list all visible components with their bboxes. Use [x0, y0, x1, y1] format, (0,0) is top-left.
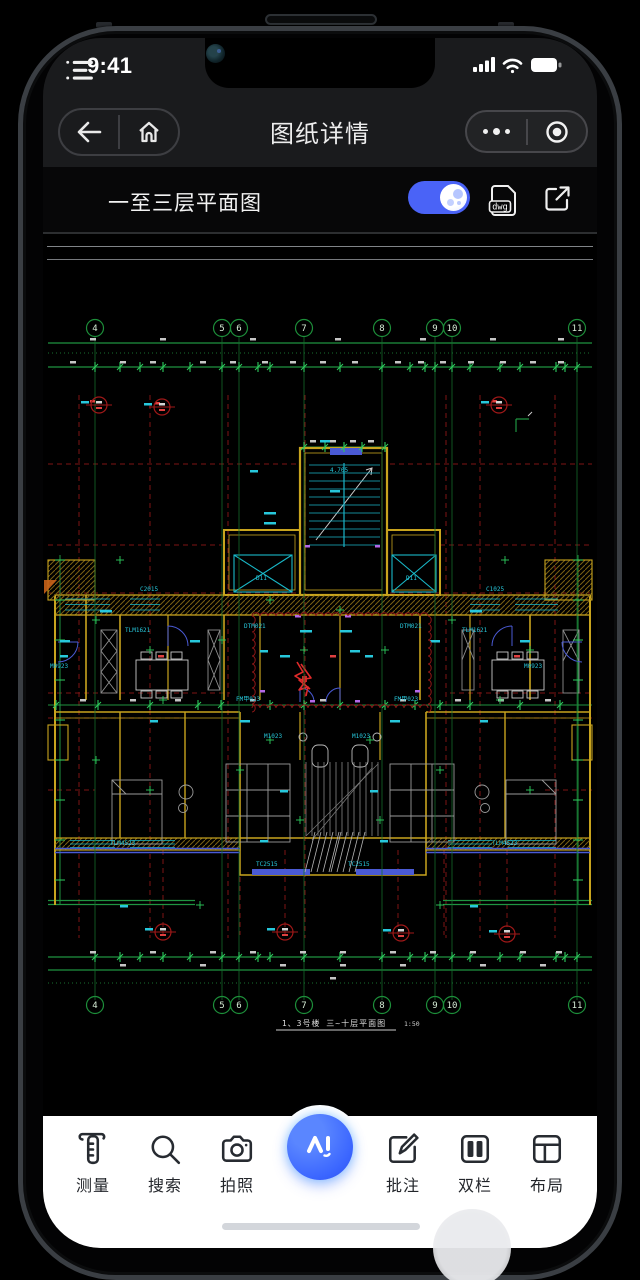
tool-measure[interactable]: 测量 — [61, 1128, 125, 1212]
svg-text:9: 9 — [432, 1001, 437, 1011]
ai-logo-icon — [300, 1127, 340, 1167]
cad-windows — [65, 599, 558, 848]
tool-label: 批注 — [371, 1172, 435, 1196]
tool-label: 布局 — [515, 1172, 579, 1196]
cad-drawing: 44556677889910101111C2015C1025TLM1621TLM… — [43, 260, 597, 1116]
annotate-icon — [386, 1132, 420, 1166]
tool-layout[interactable]: 布局 — [515, 1128, 579, 1212]
back-button[interactable] — [60, 110, 118, 154]
nav-pill — [58, 108, 180, 156]
svg-text:C1025: C1025 — [486, 586, 504, 593]
screenshot-stage: 9:41 — [0, 0, 640, 1280]
two-column-icon — [458, 1132, 492, 1166]
status-icons — [473, 55, 579, 75]
cad-viewport[interactable]: 44556677889910101111C2015C1025TLM1621TLM… — [43, 260, 597, 1116]
svg-text:5: 5 — [219, 1001, 224, 1011]
tool-label: 测量 — [61, 1172, 125, 1196]
svg-text:TLM1621: TLM1621 — [462, 627, 488, 634]
more-icon — [483, 129, 488, 134]
svg-text:6: 6 — [236, 1001, 241, 1011]
camera-icon — [220, 1132, 254, 1166]
svg-text:TLM4523: TLM4523 — [110, 840, 136, 847]
cad-balconies — [55, 849, 590, 876]
cad-red-grid — [48, 395, 592, 938]
svg-text:1、3号楼 三~十层平面图: 1、3号楼 三~十层平面图 — [282, 1018, 386, 1028]
svg-text:FM甲023: FM甲023 — [394, 696, 418, 703]
svg-text:6: 6 — [236, 324, 241, 334]
dwg-file-button[interactable]: dwg — [488, 185, 518, 217]
status-nav-area: 9:41 — [43, 38, 597, 167]
svg-text:9: 9 — [432, 324, 437, 334]
tool-label: 搜索 — [133, 1172, 197, 1196]
svg-text:7: 7 — [301, 324, 306, 334]
svg-text:10: 10 — [447, 324, 458, 334]
sheet-list-button[interactable] — [65, 60, 97, 82]
dark-mode-toggle[interactable] — [408, 181, 470, 214]
toolbar-divider — [43, 232, 597, 234]
svg-text:TLM1621: TLM1621 — [125, 627, 151, 634]
speaker-slot — [265, 14, 377, 25]
svg-text:M1023: M1023 — [352, 733, 370, 740]
svg-text:TC2515: TC2515 — [256, 861, 278, 868]
svg-text:11: 11 — [572, 324, 583, 334]
sheet-border-line-1 — [47, 246, 593, 247]
svg-text:TC2515: TC2515 — [348, 861, 370, 868]
home-button[interactable] — [120, 110, 178, 154]
battery-icon — [531, 58, 562, 72]
layout-icon — [530, 1132, 564, 1166]
svg-text:C2015: C2015 — [140, 586, 158, 593]
more-button[interactable] — [467, 112, 526, 151]
signal-icon — [473, 57, 495, 72]
screen: 9:41 — [43, 38, 597, 1248]
back-icon — [76, 121, 102, 143]
svg-text:TLM4523: TLM4523 — [492, 840, 518, 847]
svg-text:10: 10 — [447, 1001, 458, 1011]
record-icon — [544, 119, 570, 145]
home-icon — [137, 120, 161, 144]
svg-text:4: 4 — [92, 324, 97, 334]
cad-dim-lines — [48, 343, 592, 983]
svg-text:D11: D11 — [256, 575, 267, 582]
close-capsule-button[interactable] — [528, 112, 587, 151]
svg-text:M0923: M0923 — [50, 663, 68, 670]
svg-text:M1023: M1023 — [264, 733, 282, 740]
svg-text:11: 11 — [572, 1001, 583, 1011]
cad-elevators — [234, 555, 436, 592]
ai-assistant-button[interactable] — [287, 1114, 353, 1180]
svg-text:FM甲023: FM甲023 — [236, 696, 260, 703]
touch-indicator — [433, 1209, 511, 1280]
svg-text:8: 8 — [379, 324, 384, 334]
home-indicator[interactable] — [222, 1223, 420, 1230]
svg-text:7: 7 — [301, 1001, 306, 1011]
measure-icon — [76, 1132, 110, 1166]
svg-text:D11: D11 — [406, 575, 417, 582]
svg-text:1:50: 1:50 — [404, 1020, 420, 1028]
cad-dynamic-layer: 44556677889910101111C2015C1025TLM1621TLM… — [50, 320, 586, 1031]
export-button[interactable] — [543, 185, 571, 213]
tool-label: 双栏 — [443, 1172, 507, 1196]
nav-bar: 图纸详情 — [43, 104, 597, 159]
svg-text:DTM021: DTM021 — [400, 623, 422, 630]
notch — [205, 38, 435, 88]
front-camera — [206, 44, 225, 63]
phone-frame: 9:41 — [18, 26, 622, 1280]
wifi-icon — [504, 60, 521, 73]
svg-text:DTM021: DTM021 — [244, 623, 266, 630]
tool-two-column[interactable]: 双栏 — [443, 1128, 507, 1212]
miniprogram-capsule — [465, 110, 588, 153]
svg-text:8: 8 — [379, 1001, 384, 1011]
tool-photo[interactable]: 拍照 — [205, 1128, 269, 1212]
svg-text:M0923: M0923 — [524, 663, 542, 670]
toggle-knob — [440, 184, 467, 211]
search-icon — [148, 1132, 182, 1166]
svg-text:4: 4 — [92, 1001, 97, 1011]
svg-text:4.705: 4.705 — [330, 467, 348, 474]
cad-misc-marks — [44, 412, 532, 594]
drawing-title: 一至三层平面图 — [108, 187, 262, 217]
dwg-badge: dwg — [492, 203, 508, 213]
tool-search[interactable]: 搜索 — [133, 1128, 197, 1212]
tool-label: 拍照 — [205, 1172, 269, 1196]
svg-text:5: 5 — [219, 324, 224, 334]
tool-annotate[interactable]: 批注 — [371, 1128, 435, 1212]
